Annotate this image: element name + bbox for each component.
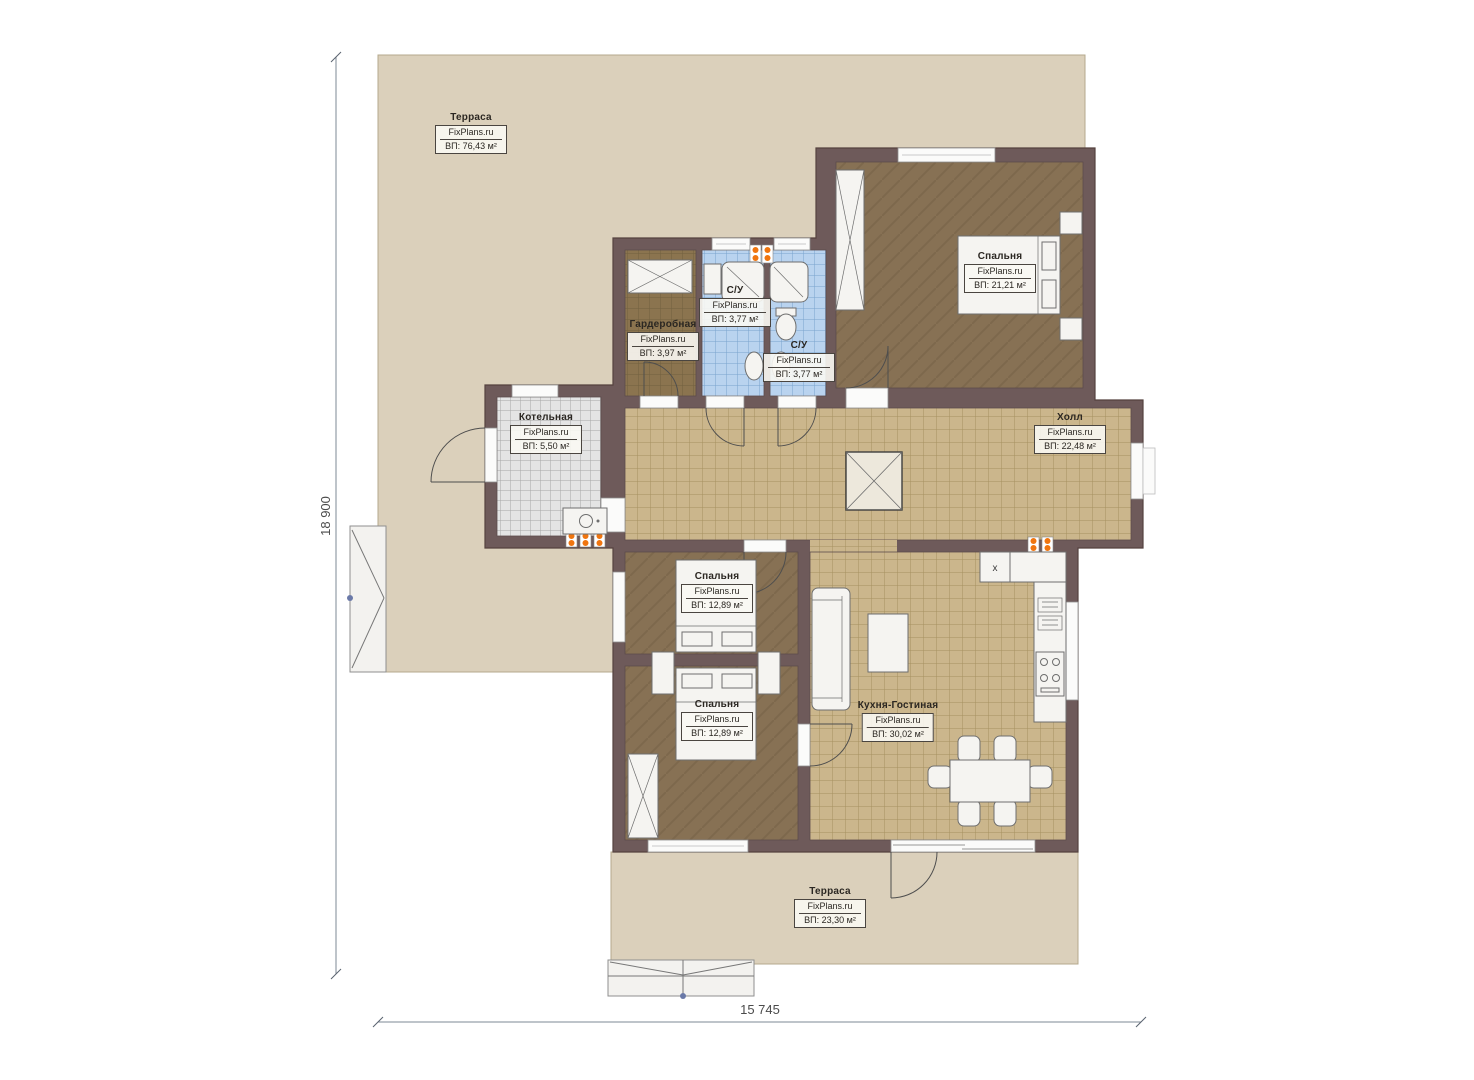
room-area: ВП: 30,02 м² (867, 728, 929, 741)
watermark: FixPlans.ru (799, 900, 861, 914)
door-wardrobe (640, 396, 678, 408)
room-info-box: FixPlans.ru ВП: 23,30 м² (794, 899, 866, 928)
dining-table-icon (950, 760, 1030, 802)
floor-hall-passage (810, 540, 897, 552)
room-info-box: FixPlans.ru ВП: 3,97 м² (627, 332, 699, 361)
watermark: FixPlans.ru (867, 714, 929, 728)
room-area: ВП: 76,43 м² (440, 140, 502, 153)
room-label-boiler: Котельная FixPlans.ru ВП: 5,50 м² (510, 412, 582, 454)
terrace-stairs-bottom (608, 960, 754, 999)
room-label-kitchen-living: Кухня-Гостиная FixPlans.ru ВП: 30,02 м² (858, 700, 939, 742)
room-area: ВП: 23,30 м² (799, 914, 861, 927)
room-name: Терраса (794, 886, 866, 897)
wardrobe-icon-bedroom3 (628, 754, 658, 838)
nightstand-icon (652, 652, 674, 694)
watermark: FixPlans.ru (440, 126, 502, 140)
chair-icon (958, 736, 980, 762)
stove-icon (1036, 652, 1064, 696)
room-area: ВП: 12,89 м² (686, 599, 748, 612)
room-label-hall: Холл FixPlans.ru ВП: 22,48 м² (1034, 412, 1106, 454)
door-bath-2 (778, 396, 816, 408)
entry-mat-icon (846, 452, 902, 510)
door-master (846, 388, 888, 408)
dimension-height: 18 900 (318, 496, 333, 536)
room-label-bedroom-3: Спальня FixPlans.ru ВП: 12,89 м² (681, 699, 753, 741)
watermark: FixPlans.ru (686, 585, 748, 599)
room-area: ВП: 3,97 м² (632, 347, 694, 360)
window-boiler-top (512, 385, 558, 397)
fridge-mark: x (993, 563, 998, 574)
room-info-box: FixPlans.ru ВП: 76,43 м² (435, 125, 507, 154)
chair-icon (928, 766, 952, 788)
room-area: ВП: 21,21 м² (969, 279, 1031, 292)
floor-plan-canvas: x 18 900 15 745 Терраса FixPlans.ru ВП: … (0, 0, 1474, 1080)
nightstand-icon (758, 652, 780, 694)
room-label-bathroom-lower: С/У FixPlans.ru ВП: 3,77 м² (763, 340, 835, 382)
room-name: С/У (763, 340, 835, 351)
room-info-box: FixPlans.ru ВП: 12,89 м² (681, 584, 753, 613)
room-info-box: FixPlans.ru ВП: 5,50 м² (510, 425, 582, 454)
room-area: ВП: 3,77 м² (704, 313, 766, 326)
room-info-box: FixPlans.ru ВП: 3,77 м² (763, 353, 835, 382)
boiler-counter (563, 508, 607, 534)
sink-icon (745, 352, 763, 380)
room-info-box: FixPlans.ru ВП: 22,48 м² (1034, 425, 1106, 454)
terrace-stairs-left (347, 526, 386, 672)
chair-icon (994, 800, 1016, 826)
window-kitchen-east (1066, 602, 1078, 700)
room-area: ВП: 5,50 м² (515, 440, 577, 453)
watermark: FixPlans.ru (768, 354, 830, 368)
room-label-bathroom-top: С/У FixPlans.ru ВП: 3,77 м² (699, 285, 771, 327)
room-name: Спальня (681, 699, 753, 710)
watermark: FixPlans.ru (704, 299, 766, 313)
kitchen-counter-top (1010, 552, 1066, 582)
room-info-box: FixPlans.ru ВП: 30,02 м² (862, 713, 934, 742)
room-info-box: FixPlans.ru ВП: 21,21 м² (964, 264, 1036, 293)
room-name: Гардеробная (627, 319, 699, 330)
nightstand-icon (1060, 212, 1082, 234)
chair-icon (994, 736, 1016, 762)
terrace-slide-door (891, 840, 1035, 852)
watermark: FixPlans.ru (515, 426, 577, 440)
watermark: FixPlans.ru (632, 333, 694, 347)
room-name: Холл (1034, 412, 1106, 423)
room-name: Котельная (510, 412, 582, 423)
toilet-icon (776, 308, 796, 340)
room-name: Спальня (681, 571, 753, 582)
chair-icon (1028, 766, 1052, 788)
door-bedroom-3 (798, 724, 810, 766)
room-name: С/У (699, 285, 771, 296)
room-name: Кухня-Гостиная (858, 700, 939, 711)
watermark: FixPlans.ru (686, 713, 748, 727)
room-area: ВП: 22,48 м² (1039, 440, 1101, 453)
room-name: Терраса (435, 112, 507, 123)
window-bedroom2-west (613, 572, 625, 642)
chair-icon (958, 800, 980, 826)
nightstand-icon (1060, 318, 1082, 340)
floor-plan-drawing: x 18 900 15 745 (0, 0, 1474, 1080)
room-area: ВП: 3,77 м² (768, 368, 830, 381)
dimension-width: 15 745 (740, 1002, 780, 1017)
room-label-bedroom-master: Спальня FixPlans.ru ВП: 21,21 м² (964, 251, 1036, 293)
room-info-box: FixPlans.ru ВП: 3,77 м² (699, 298, 771, 327)
room-label-wardrobe: Гардеробная FixPlans.ru ВП: 3,97 м² (627, 319, 699, 361)
room-name: Спальня (964, 251, 1036, 262)
wardrobe-icon-hall (628, 260, 692, 293)
room-label-terrace-bottom: Терраса FixPlans.ru ВП: 23,30 м² (794, 886, 866, 928)
entry-threshold (1143, 448, 1155, 494)
room-info-box: FixPlans.ru ВП: 12,89 м² (681, 712, 753, 741)
door-bedroom-2 (744, 540, 786, 552)
sofa-icon (812, 588, 850, 710)
coffee-table-icon (868, 614, 908, 672)
entry-door-east (1131, 443, 1143, 499)
wardrobe-icon-master (836, 170, 864, 310)
watermark: FixPlans.ru (1039, 426, 1101, 440)
room-area: ВП: 12,89 м² (686, 727, 748, 740)
watermark: FixPlans.ru (969, 265, 1031, 279)
room-label-bedroom-2: Спальня FixPlans.ru ВП: 12,89 м² (681, 571, 753, 613)
door-bath-1 (706, 396, 744, 408)
shower-icon (770, 262, 808, 302)
room-label-terrace-top: Терраса FixPlans.ru ВП: 76,43 м² (435, 112, 507, 154)
boiler-door-west (485, 428, 497, 482)
